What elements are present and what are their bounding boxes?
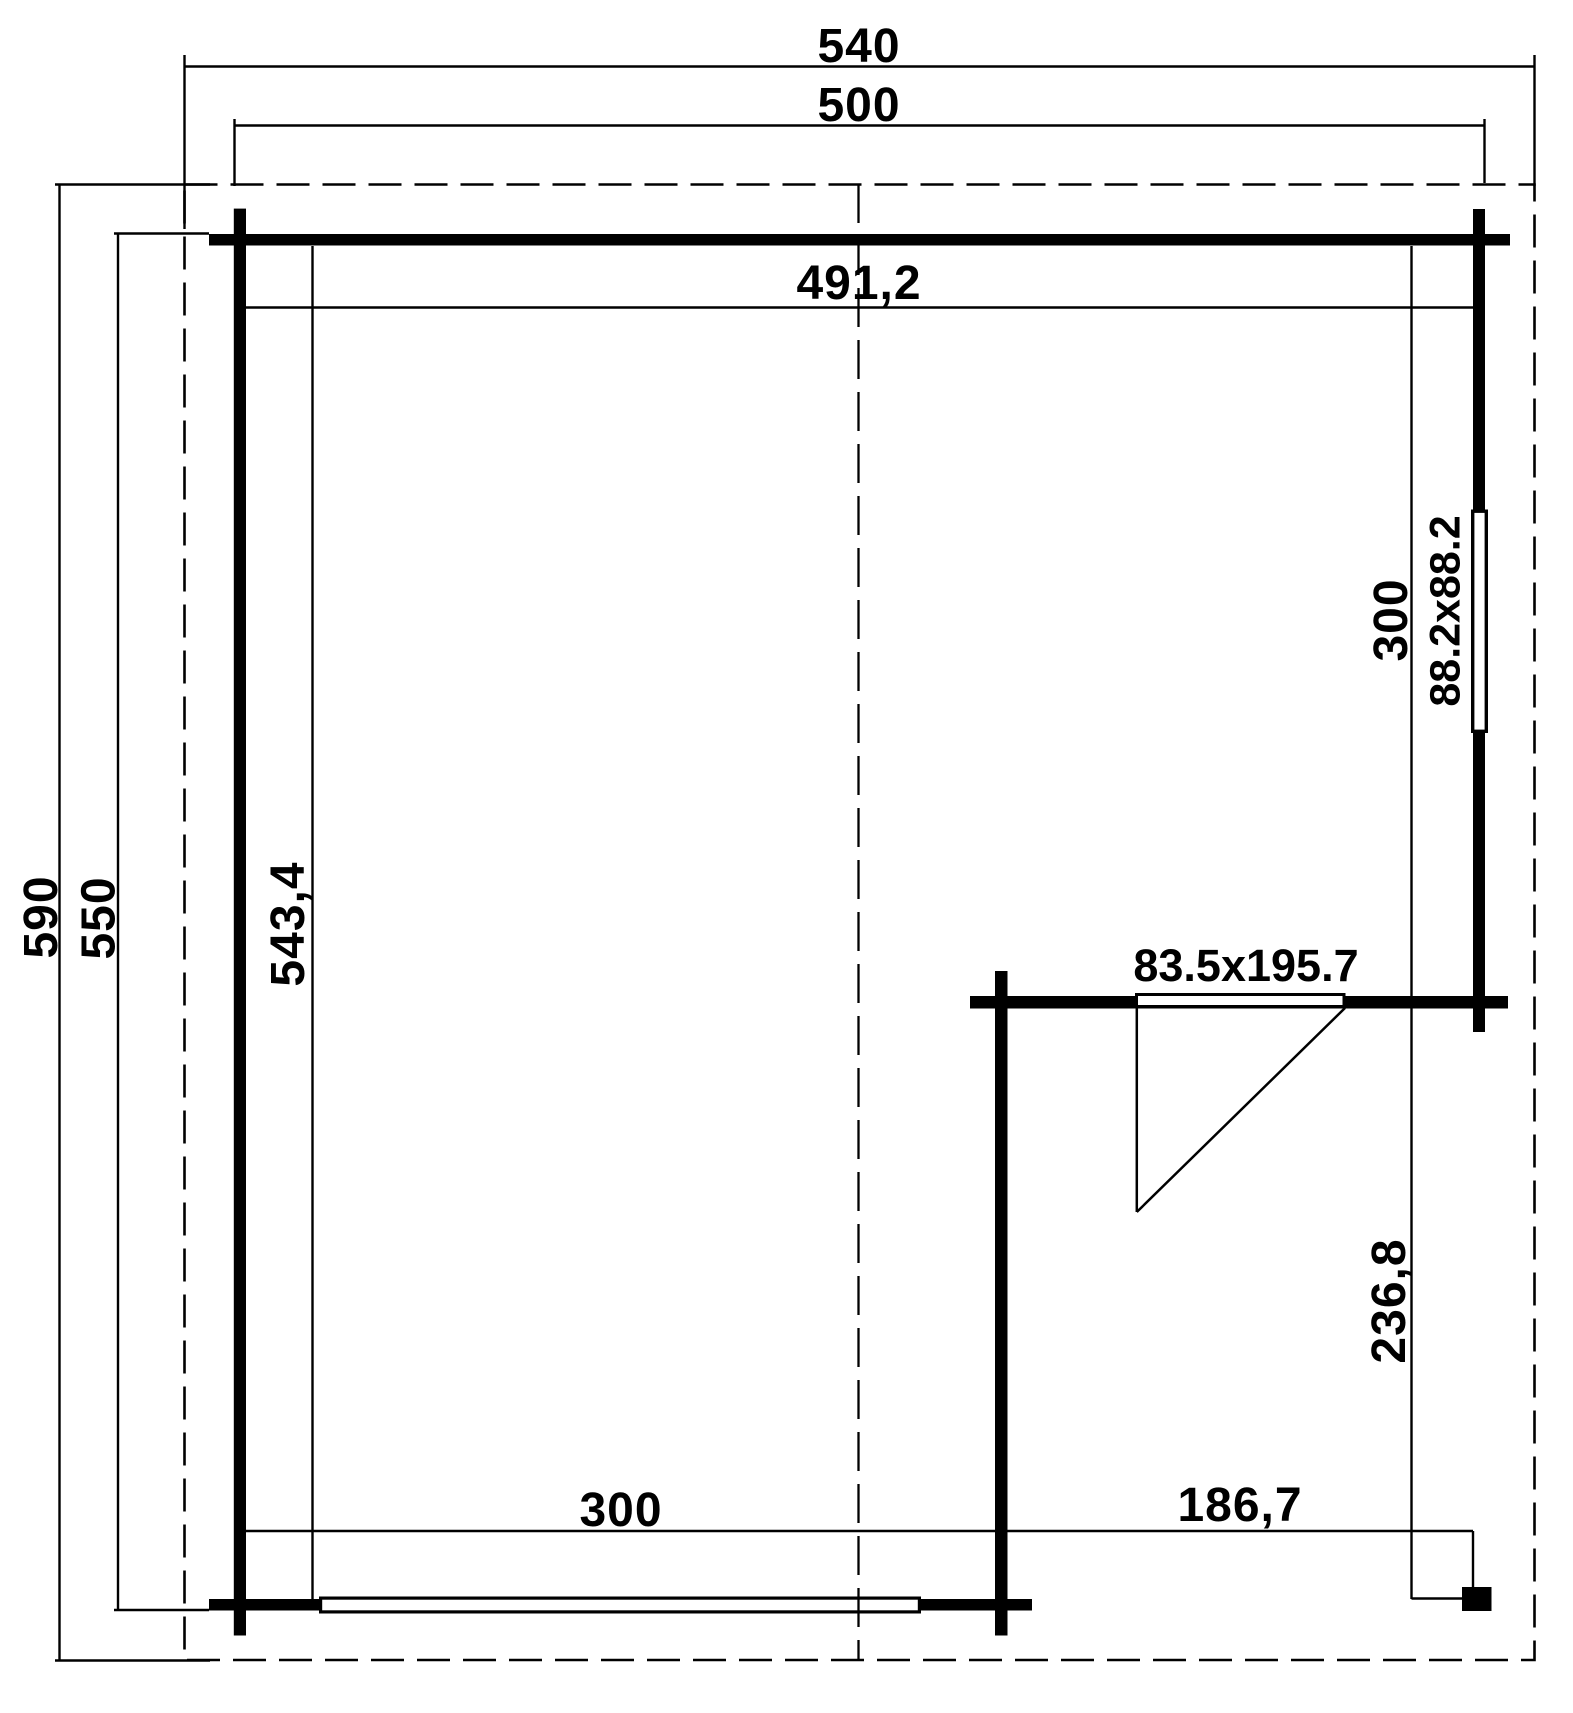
svg-text:186,7: 186,7 (1177, 1479, 1302, 1532)
svg-text:540: 540 (817, 20, 900, 73)
svg-text:491,2: 491,2 (796, 257, 921, 310)
svg-text:300: 300 (1365, 578, 1418, 661)
svg-text:500: 500 (817, 79, 900, 132)
svg-text:543,4: 543,4 (262, 861, 315, 986)
svg-text:83.5x195.7: 83.5x195.7 (1133, 940, 1358, 991)
svg-text:300: 300 (579, 1484, 662, 1537)
svg-text:88.2x88.2: 88.2x88.2 (1422, 515, 1470, 706)
svg-text:236,8: 236,8 (1363, 1238, 1416, 1363)
svg-text:550: 550 (73, 876, 126, 959)
svg-text:590: 590 (15, 875, 68, 958)
